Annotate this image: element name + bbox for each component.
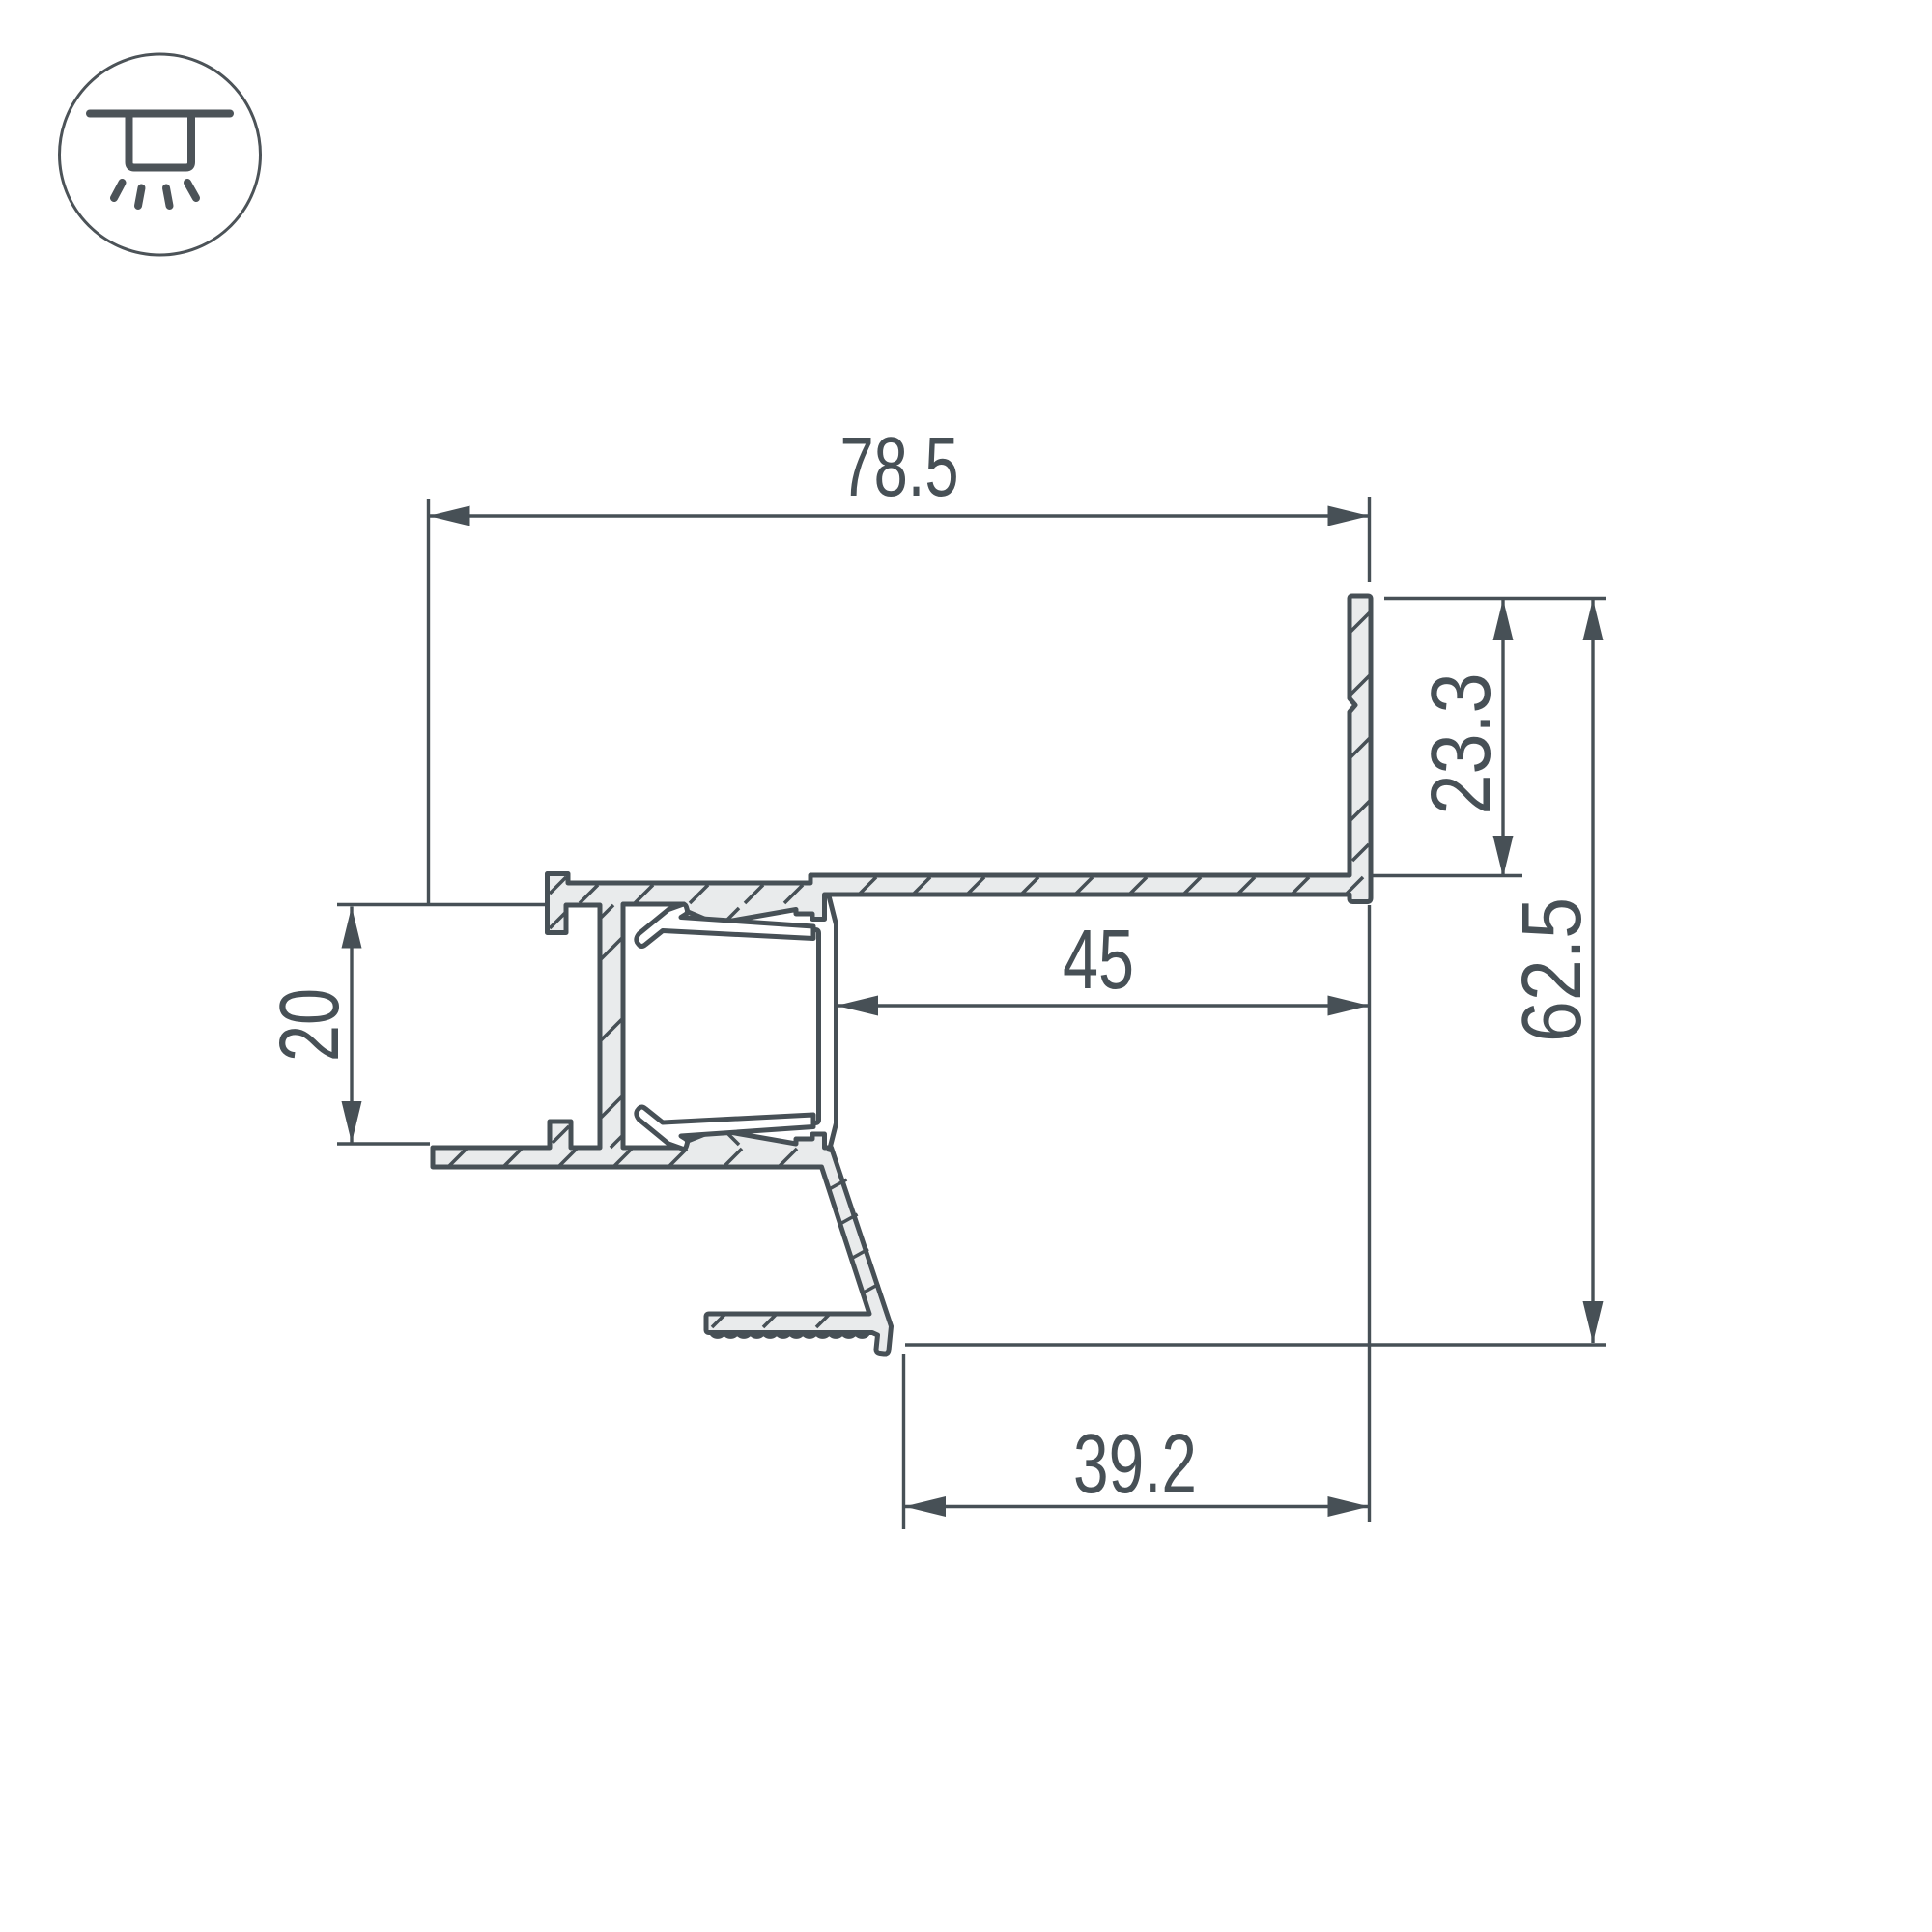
svg-text:20: 20 <box>263 988 356 1062</box>
svg-text:78.5: 78.5 <box>840 420 959 514</box>
svg-text:45: 45 <box>1063 913 1134 1007</box>
svg-text:39.2: 39.2 <box>1073 1417 1197 1511</box>
svg-text:23.3: 23.3 <box>1414 673 1508 815</box>
svg-text:62.5: 62.5 <box>1505 897 1599 1042</box>
